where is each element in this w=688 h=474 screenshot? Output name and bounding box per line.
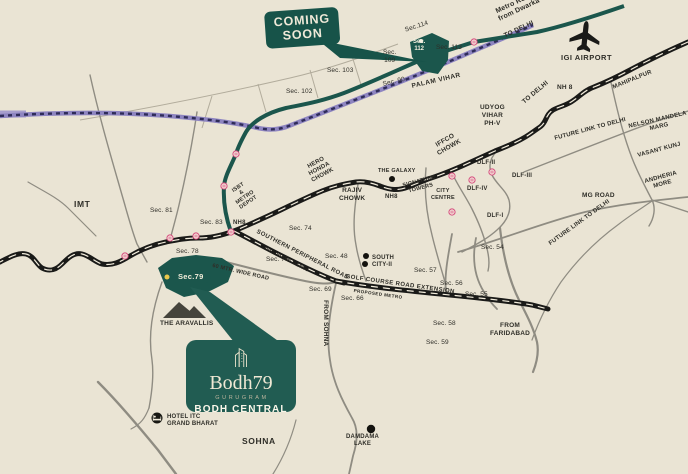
label-sec-81: Sec. 81 — [150, 207, 173, 215]
logo-project: BODH CENTRAL — [194, 404, 287, 415]
highway-nh8 — [0, 42, 688, 270]
bodh79-logo-card: Bodh79 GURUGRAM BODH CENTRAL — [186, 340, 296, 412]
label-from-faridabad: FROM FARIDABAD — [483, 322, 537, 338]
label-sec-113: Sec. 113 — [436, 44, 462, 52]
bodh79-location-map: Metro Route from Dwarka TO DELHI IGI AIR… — [0, 0, 688, 474]
mountains-icon — [163, 302, 206, 318]
hotel-bed-icon — [152, 413, 163, 424]
label-dlf1: DLF-I — [487, 213, 503, 220]
label-sec-74: Sec. 74 — [289, 225, 312, 233]
label-rajiv-chowk: RAJIV CHOWK — [339, 187, 365, 203]
label-igi-airport: IGI AIRPORT — [561, 53, 612, 62]
label-nh8: NH 8 — [557, 84, 573, 92]
label-sec-66: Sec. 66 — [341, 295, 364, 303]
label-dlf4: DLF-IV — [467, 186, 488, 193]
label-sec-102: Sec. 102 — [286, 88, 312, 96]
label-sec-78: Sec. 78 — [176, 248, 199, 256]
label-sohna: SOHNA — [242, 436, 276, 446]
label-sec-48: Sec. 48 — [325, 253, 348, 261]
label-hotel-itc: HOTEL ITC GRAND BHARAT — [167, 414, 218, 428]
label-mg-road: MG ROAD — [582, 192, 615, 200]
sector-79-marker-dot — [165, 275, 170, 280]
sector-79-badge: Sec.79 — [172, 270, 211, 283]
damdama-lake-dot — [367, 425, 375, 433]
airplane-icon — [568, 20, 601, 53]
coming-soon-badge: COMING SOON — [264, 7, 341, 49]
label-the-galaxy: THE GALAXY — [378, 168, 415, 175]
label-dlf2: DLF-II — [477, 160, 495, 167]
building-icon — [230, 344, 252, 373]
label-sec-58: Sec. 58 — [433, 320, 456, 328]
label-imt: IMT — [74, 199, 90, 209]
sector-112-badge: Sec. 112 — [413, 39, 425, 53]
south-city-dot-1 — [363, 253, 369, 259]
label-sec-109: Sec. 109 — [383, 49, 396, 65]
label-sec-59: Sec. 59 — [426, 339, 449, 347]
label-sec-56: Sec. 56 — [440, 280, 463, 288]
label-sec-57: Sec. 57 — [414, 267, 437, 275]
the-galaxy-dot — [389, 176, 395, 182]
label-nh8-junction: NH8 — [233, 220, 246, 227]
logo-brand: Bodh79 — [209, 373, 272, 393]
label-sec-69: Sec. 69 — [309, 286, 332, 294]
south-city-dot-2 — [362, 261, 368, 267]
logo-city: GURUGRAM — [215, 395, 269, 401]
label-aravallis: THE ARAVALLIS — [160, 320, 213, 328]
label-sec-55: Sec. 55 — [465, 291, 488, 299]
minor-roads — [28, 75, 688, 474]
label-dlf3: DLF-III — [512, 173, 532, 180]
label-sec-83: Sec. 83 — [200, 219, 223, 227]
label-city-centre: CITY CENTRE — [431, 188, 455, 201]
label-udyog-vihar: UDYOG VIHAR PH-V — [480, 104, 505, 127]
label-sec-103: Sec. 103 — [327, 67, 353, 75]
label-south-city: SOUTH CITY-II — [372, 255, 394, 269]
label-damdama-lake: DAMDAMA LAKE — [346, 434, 379, 448]
label-sec-54: Sec. 54 — [481, 244, 504, 252]
label-nh8-galaxy: NH8 — [385, 194, 398, 201]
label-from-sohna: FROM SOHNA — [321, 300, 329, 346]
